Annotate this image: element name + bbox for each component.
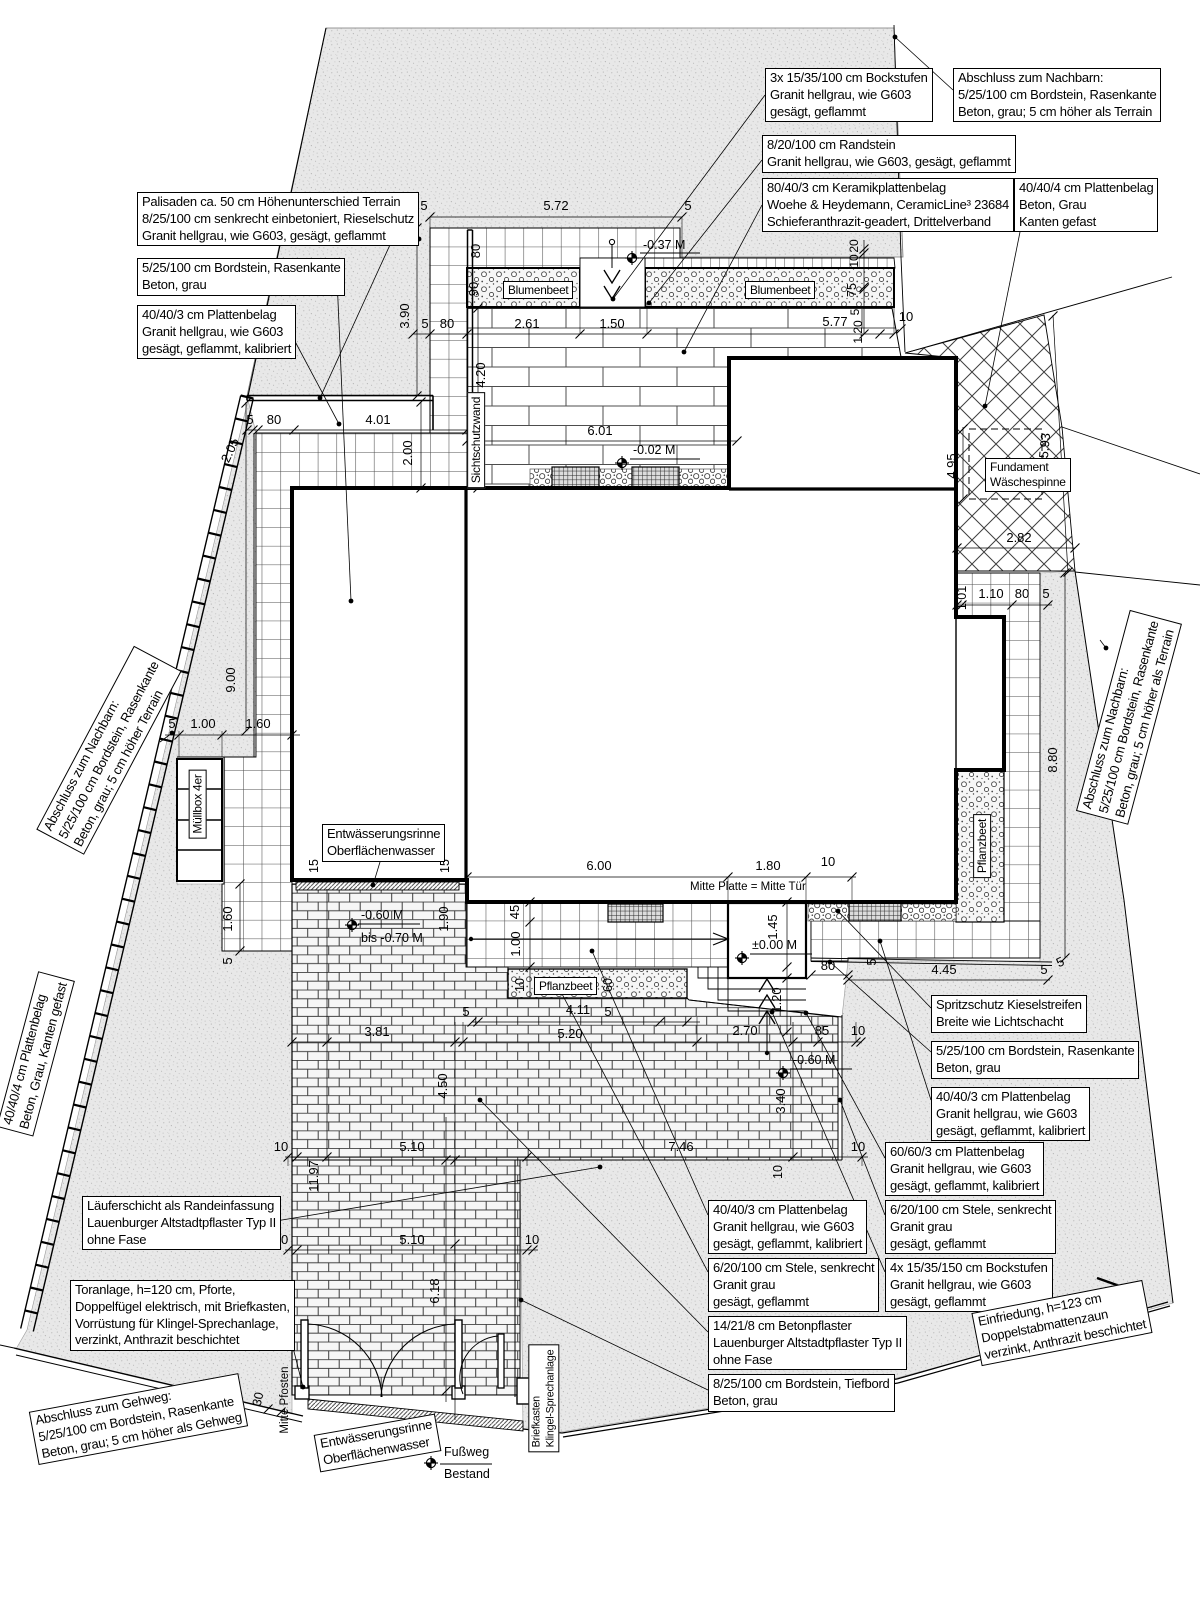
svg-text:6.01: 6.01 — [587, 423, 612, 438]
svg-text:10: 10 — [847, 254, 861, 268]
svg-text:4.11: 4.11 — [566, 1002, 590, 1017]
svg-text:15: 15 — [307, 859, 321, 873]
svg-text:10: 10 — [771, 1165, 785, 1179]
svg-text:4.95: 4.95 — [944, 453, 959, 478]
svg-text:5: 5 — [421, 316, 428, 331]
svg-text:10: 10 — [274, 1139, 288, 1154]
svg-text:5: 5 — [420, 198, 427, 213]
svg-text:8.80: 8.80 — [1045, 747, 1060, 772]
svg-text:-0.60 M: -0.60 M — [361, 908, 403, 922]
svg-text:3.40: 3.40 — [773, 1088, 788, 1113]
svg-text:5: 5 — [168, 716, 175, 731]
svg-text:10: 10 — [513, 978, 527, 992]
svg-text:20: 20 — [847, 239, 861, 253]
svg-text:3.81: 3.81 — [364, 1024, 389, 1039]
svg-text:80: 80 — [468, 244, 483, 258]
svg-text:5: 5 — [684, 198, 691, 213]
svg-text:Fußweg: Fußweg — [444, 1445, 489, 1459]
svg-text:1.90: 1.90 — [436, 906, 451, 931]
svg-text:1.50: 1.50 — [599, 316, 624, 331]
svg-text:1.60: 1.60 — [245, 716, 270, 731]
svg-text:9.00: 9.00 — [223, 667, 238, 692]
svg-text:1.10: 1.10 — [978, 586, 1003, 601]
svg-text:5: 5 — [1042, 586, 1049, 601]
svg-text:80: 80 — [267, 412, 281, 427]
svg-text:5: 5 — [848, 308, 862, 315]
svg-text:10: 10 — [851, 1023, 865, 1038]
svg-text:5: 5 — [604, 1004, 611, 1019]
svg-text:5: 5 — [246, 412, 253, 427]
svg-text:85: 85 — [815, 1023, 829, 1038]
svg-text:2.61: 2.61 — [514, 316, 539, 331]
svg-text:1.01: 1.01 — [955, 586, 969, 610]
svg-text:11.97: 11.97 — [306, 1160, 321, 1192]
svg-text:7.46: 7.46 — [668, 1139, 693, 1154]
svg-text:5: 5 — [220, 957, 235, 964]
svg-text:5.10: 5.10 — [399, 1232, 424, 1247]
svg-text:1.60: 1.60 — [220, 906, 235, 931]
svg-text:1.80: 1.80 — [755, 858, 780, 873]
svg-text:2.82: 2.82 — [1006, 530, 1031, 545]
svg-text:5.10: 5.10 — [399, 1139, 424, 1154]
svg-text:4.50: 4.50 — [435, 1073, 450, 1098]
svg-text:5.20: 5.20 — [557, 1026, 582, 1041]
svg-text:1.20: 1.20 — [851, 320, 865, 344]
svg-text:30: 30 — [250, 1391, 267, 1408]
svg-text:5.93: 5.93 — [1036, 432, 1053, 459]
svg-text:4.45: 4.45 — [931, 962, 956, 977]
svg-text:Bestand: Bestand — [444, 1467, 490, 1481]
svg-text:90: 90 — [466, 282, 481, 296]
svg-text:1.20: 1.20 — [769, 987, 784, 1012]
svg-text:75: 75 — [845, 283, 859, 297]
svg-text:5: 5 — [1040, 962, 1047, 977]
svg-text:5.77: 5.77 — [822, 314, 847, 329]
svg-text:6.00: 6.00 — [586, 858, 611, 873]
svg-text:4.20: 4.20 — [473, 362, 488, 387]
svg-text:80: 80 — [821, 958, 835, 973]
svg-text:5: 5 — [865, 958, 879, 965]
svg-text:80: 80 — [1015, 586, 1029, 601]
svg-text:4.01: 4.01 — [365, 412, 390, 427]
svg-text:1.00: 1.00 — [190, 716, 215, 731]
svg-text:2.00: 2.00 — [400, 440, 415, 465]
svg-text:10: 10 — [821, 854, 835, 869]
svg-text:1.00: 1.00 — [508, 931, 523, 956]
svg-text:60: 60 — [601, 978, 615, 992]
svg-text:-0.02 M: -0.02 M — [633, 443, 675, 457]
svg-text:45: 45 — [507, 905, 522, 919]
svg-text:10: 10 — [525, 1232, 539, 1247]
svg-text:5: 5 — [462, 1004, 469, 1019]
svg-text:10: 10 — [899, 309, 913, 324]
svg-text:5.72: 5.72 — [543, 198, 568, 213]
svg-text:80: 80 — [440, 316, 454, 331]
svg-text:bis -0.70 M: bis -0.70 M — [361, 931, 423, 945]
svg-text:3.90: 3.90 — [397, 303, 412, 328]
svg-text:6.18: 6.18 — [427, 1278, 442, 1303]
svg-text:2.70: 2.70 — [732, 1023, 757, 1038]
svg-text:±0.00 M: ±0.00 M — [752, 938, 797, 952]
svg-text:1.45: 1.45 — [765, 914, 780, 939]
